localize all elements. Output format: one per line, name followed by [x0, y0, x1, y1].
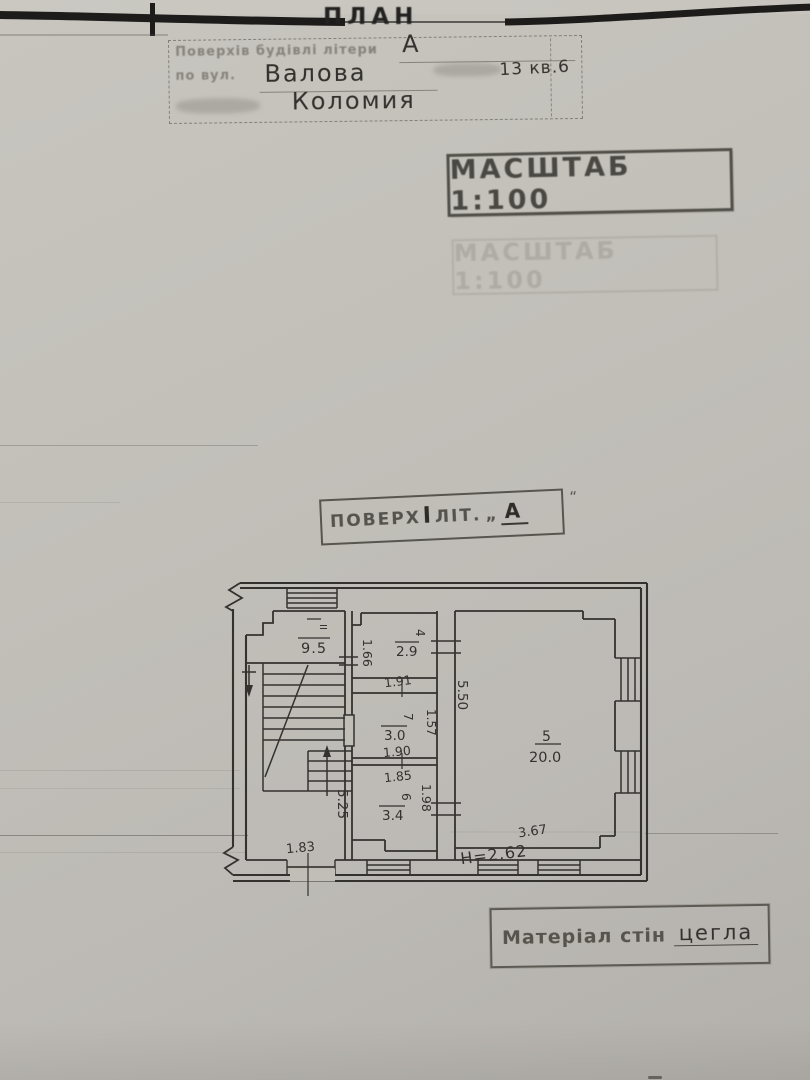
address-city: Коломия: [292, 86, 416, 116]
material-stamp: Матеріал стін цегла: [490, 904, 771, 968]
window-right-1: [615, 658, 641, 701]
window-right-2: [615, 751, 641, 793]
dim-3-67: 3.67: [517, 822, 548, 841]
room5-number: 5: [542, 729, 551, 745]
scale-stamp-ghost: МАСШТАБ 1:100: [452, 235, 719, 296]
scanned-floor-plan-page: ПЛАН Поверхів будівлі літери А по вул. В…: [0, 0, 810, 1080]
dim-5-50: 5.50: [454, 680, 470, 710]
dim-1-98: 1.98: [419, 784, 434, 812]
door-jamb-room7: [344, 715, 354, 746]
window-bottom-1: [367, 860, 410, 875]
room4-area: 2.9: [396, 644, 417, 660]
dim-1-83: 1.83: [285, 840, 315, 857]
wall-break-top: [226, 583, 242, 611]
wall-break-bottom: [224, 847, 238, 875]
floor-stamp: ПОВЕРХ І ЛІТ. „ А “: [319, 488, 565, 545]
material-value-handwritten: цегла: [674, 919, 758, 945]
scale-stamp-text: МАСШТАБ 1:100: [449, 149, 730, 217]
open-quote: „: [485, 504, 499, 525]
ink-smudge: [433, 63, 501, 77]
dim-1-90: 1.90: [382, 743, 411, 760]
scale-stamp-ghost-text: МАСШТАБ 1:100: [454, 235, 717, 296]
room6-area: 3.4: [382, 808, 403, 824]
door-ticks: [431, 803, 461, 815]
room5-outline: [455, 611, 615, 848]
room7-area: 3.0: [384, 728, 405, 744]
porch-steps: [287, 588, 337, 608]
close-quote: “: [569, 488, 578, 506]
dim-1-91: 1.91: [383, 672, 412, 690]
paper-bottom-shade: [0, 1020, 810, 1080]
wall-left-middle: [339, 611, 358, 860]
door-ticks: [431, 641, 461, 653]
ink-smudge: [176, 98, 260, 114]
room5-area: 20.0: [529, 750, 561, 766]
plan-title-stamp: ПЛАН: [323, 4, 418, 30]
room7-number: 7: [401, 713, 415, 721]
window-bottom-3: [538, 860, 580, 875]
dim-5-25: 5.25: [334, 789, 350, 819]
scale-stamp: МАСШТАБ 1:100: [446, 148, 733, 217]
material-stamp-label: Матеріал стін: [502, 924, 666, 949]
address-line1-label: Поверхів будівлі літери: [175, 42, 378, 59]
room4-number: 4: [413, 629, 427, 637]
floor-number-handwritten: І: [422, 503, 431, 528]
scan-artifact-line: [0, 445, 258, 446]
floor-stamp-prefix: ПОВЕРХ: [330, 508, 422, 532]
dim-1-57: 1.57: [424, 709, 438, 736]
stair-direction-line: [265, 665, 308, 777]
stair-arrow-down: [242, 665, 256, 697]
staircase: [263, 663, 352, 791]
room6-number: 6: [399, 793, 413, 801]
address-street: Валова: [264, 59, 366, 88]
address-line2-label: по вул.: [175, 68, 236, 84]
address-line1-letter: А: [402, 30, 420, 58]
bottom-wall: [246, 860, 641, 882]
litera-handwritten: А: [500, 498, 529, 525]
door-gap-mask: [290, 869, 335, 882]
dim-1-85: 1.85: [383, 767, 412, 785]
stair-hall-number: ІІ: [317, 624, 328, 630]
floor-stamp-lit: ЛІТ.: [435, 505, 482, 527]
stair-hall-outline: [246, 611, 345, 663]
floor-plan-drawing: ІІ 9.5 4 2.9 7 3.0 6 3.4 5 20.0 1.66 1.9…: [200, 553, 680, 925]
address-stamp-box: Поверхів будівлі літери А по вул. Валова…: [168, 35, 583, 124]
dim-extension-lines: [308, 679, 402, 896]
stair-hall-area: 9.5: [301, 641, 327, 657]
dim-1-66: 1.66: [360, 639, 375, 667]
fold-tick: [150, 3, 155, 36]
scan-artifact-line: [0, 502, 120, 503]
address-number: 13 кв.6: [499, 57, 570, 80]
